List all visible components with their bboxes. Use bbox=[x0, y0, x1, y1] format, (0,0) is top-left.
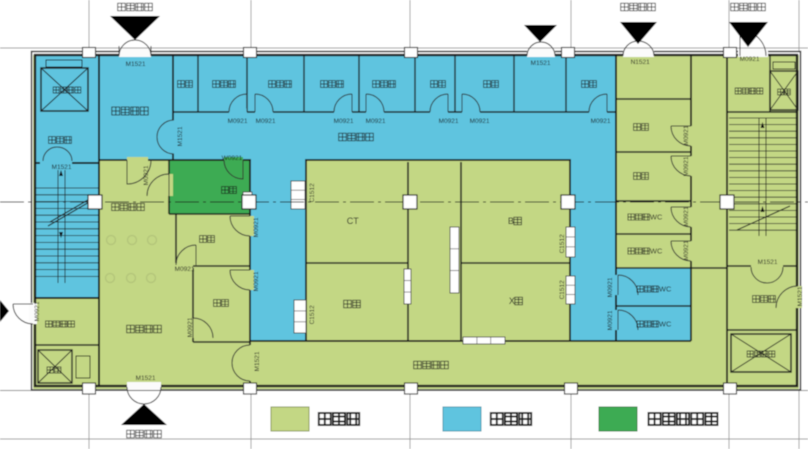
svg-text:M1521: M1521 bbox=[797, 286, 804, 306]
svg-text:M0921: M0921 bbox=[683, 206, 690, 226]
svg-text:WC: WC bbox=[650, 213, 663, 222]
svg-text:M0921: M0921 bbox=[34, 301, 41, 321]
svg-text:W0921: W0921 bbox=[222, 155, 243, 162]
svg-text:C1512: C1512 bbox=[309, 183, 316, 203]
svg-text:C1512: C1512 bbox=[559, 280, 566, 300]
svg-text:M0921: M0921 bbox=[607, 310, 614, 330]
svg-text:M0921: M0921 bbox=[253, 271, 260, 291]
svg-text:WC: WC bbox=[659, 320, 672, 329]
svg-text:M0921: M0921 bbox=[228, 118, 248, 125]
svg-text:N1521: N1521 bbox=[631, 59, 651, 66]
svg-text:M1521: M1521 bbox=[136, 375, 156, 382]
svg-text:M0921: M0921 bbox=[683, 125, 690, 145]
svg-text:WC: WC bbox=[650, 247, 663, 256]
svg-text:C1512: C1512 bbox=[559, 234, 566, 254]
svg-text:M0921: M0921 bbox=[256, 118, 276, 125]
svg-text:CT: CT bbox=[347, 216, 359, 226]
svg-text:X: X bbox=[509, 296, 515, 306]
svg-text:M0921: M0921 bbox=[591, 118, 611, 125]
svg-text:M1521: M1521 bbox=[758, 259, 778, 266]
svg-text:C1512: C1512 bbox=[309, 305, 316, 325]
svg-text:M0921: M0921 bbox=[683, 156, 690, 176]
svg-text:M0921: M0921 bbox=[175, 266, 195, 273]
svg-text:M0921: M0921 bbox=[143, 165, 150, 185]
svg-text:M0921: M0921 bbox=[683, 240, 690, 260]
svg-text:M1521: M1521 bbox=[254, 351, 261, 371]
svg-text:M0921: M0921 bbox=[366, 118, 386, 125]
svg-text:M1521: M1521 bbox=[531, 60, 551, 67]
svg-text:M0921: M0921 bbox=[740, 56, 760, 63]
svg-text:M1521: M1521 bbox=[52, 164, 72, 171]
svg-text:B: B bbox=[508, 216, 514, 226]
svg-text:M0921: M0921 bbox=[607, 277, 614, 297]
svg-text:WC: WC bbox=[659, 285, 672, 294]
svg-text:M1521: M1521 bbox=[126, 61, 146, 68]
svg-text:M0921: M0921 bbox=[470, 118, 490, 125]
svg-text:M0921: M0921 bbox=[187, 317, 194, 337]
svg-text:M0921: M0921 bbox=[253, 217, 260, 237]
svg-text:M0921: M0921 bbox=[334, 118, 354, 125]
svg-text:M0921: M0921 bbox=[439, 118, 459, 125]
svg-text:M1521: M1521 bbox=[177, 126, 184, 146]
